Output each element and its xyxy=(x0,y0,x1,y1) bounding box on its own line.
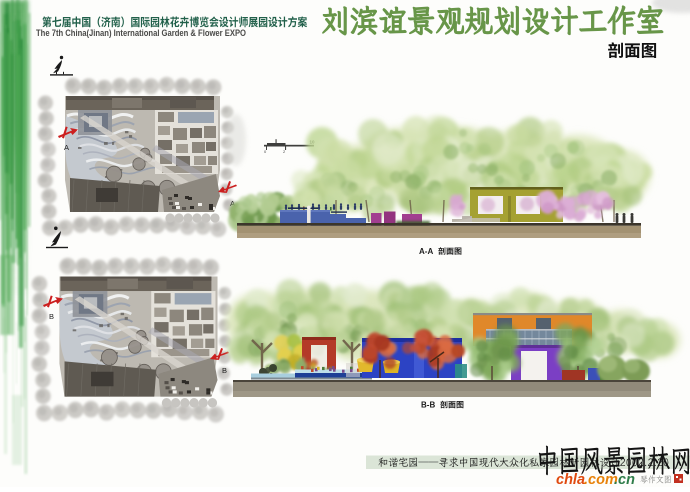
svg-text:B-B: B-B xyxy=(421,401,435,410)
svg-text:B: B xyxy=(49,312,54,321)
svg-text:The 7th China(Jinan) Internati: The 7th China(Jinan) International Garde… xyxy=(36,28,246,38)
svg-text:chla: chla xyxy=(556,472,585,487)
svg-text:A-A: A-A xyxy=(419,247,433,256)
svg-text:A: A xyxy=(64,143,69,152)
svg-text:.com: .com xyxy=(584,472,618,487)
svg-text:.cn: .cn xyxy=(614,472,635,487)
svg-text:B: B xyxy=(222,366,227,375)
